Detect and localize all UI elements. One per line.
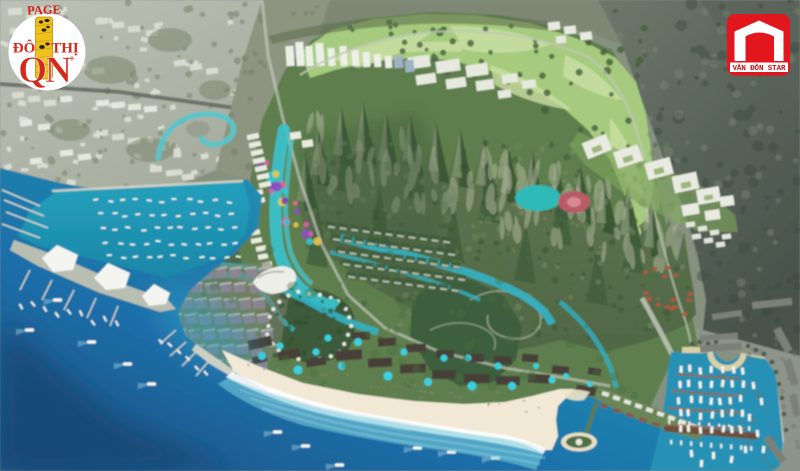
svg-text:PAGE: PAGE: [27, 2, 61, 17]
svg-text:+: +: [69, 54, 75, 65]
svg-text:QN: QN: [18, 50, 72, 91]
